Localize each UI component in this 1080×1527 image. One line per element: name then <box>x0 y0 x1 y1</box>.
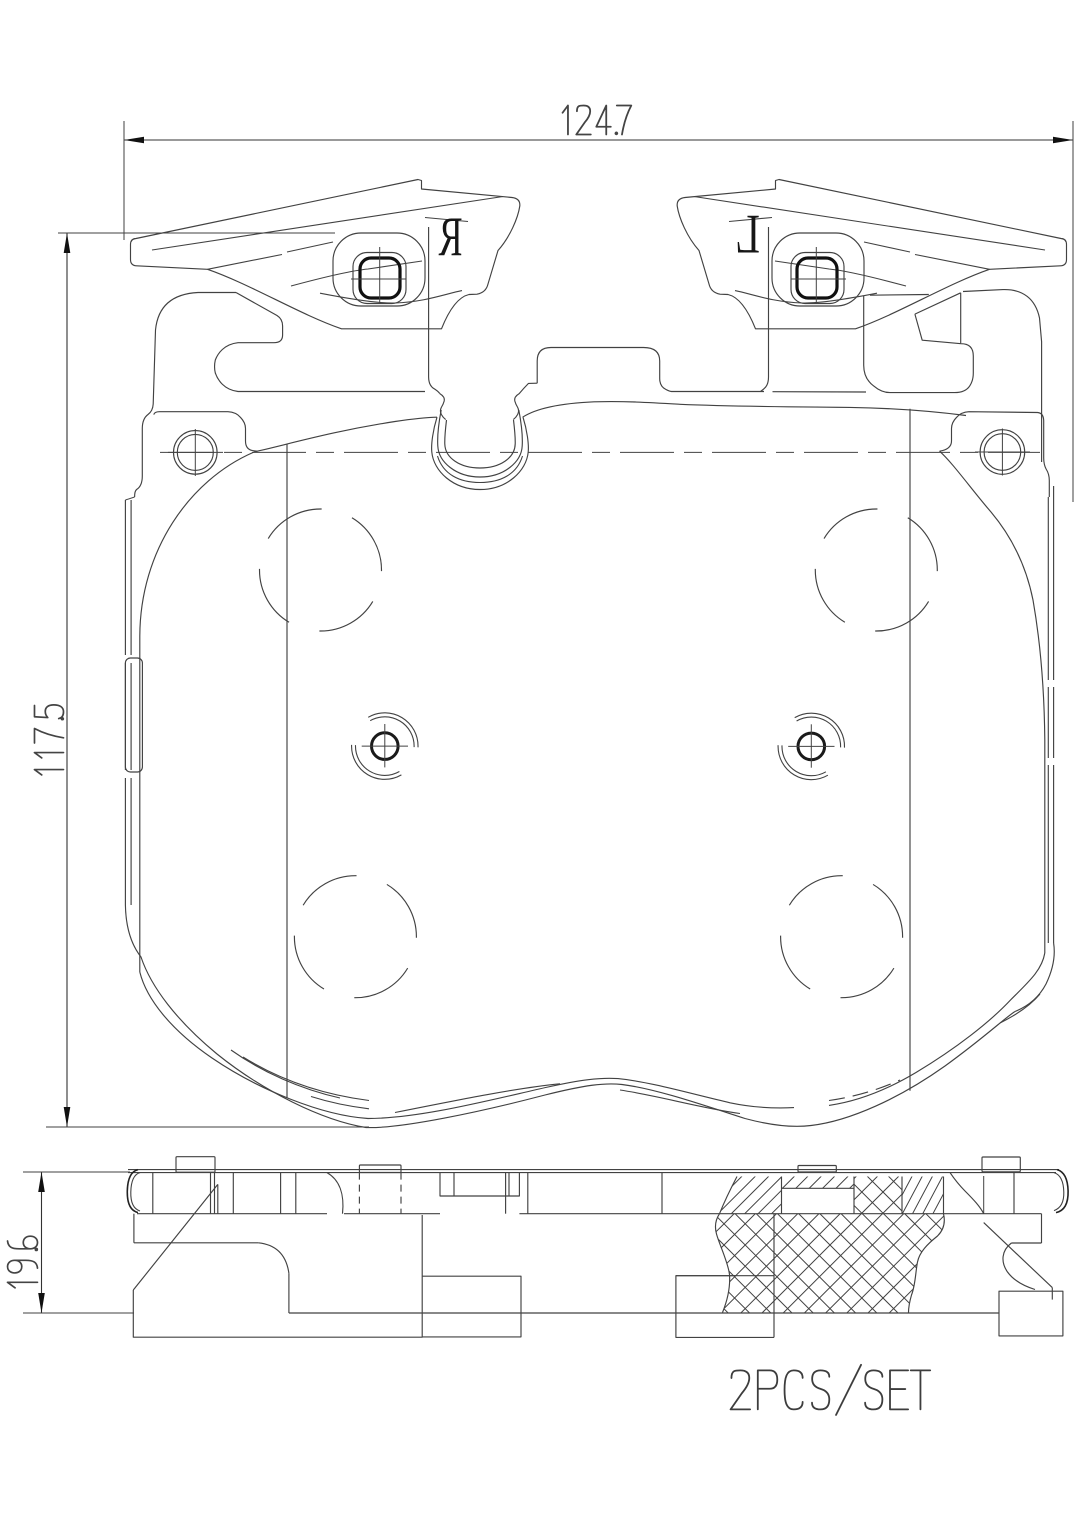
svg-text:L: L <box>735 203 760 265</box>
svg-text:R: R <box>438 206 462 268</box>
